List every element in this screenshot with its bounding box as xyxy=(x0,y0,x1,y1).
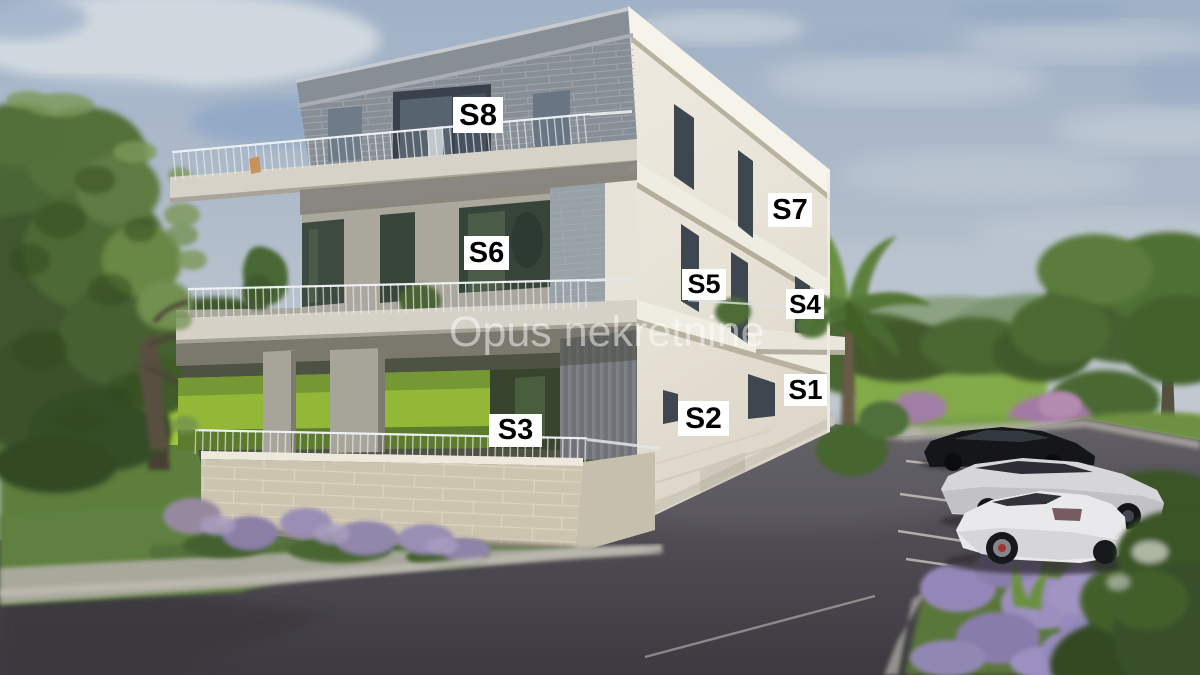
svg-text:Opus nekretnine: Opus nekretnine xyxy=(449,308,765,356)
